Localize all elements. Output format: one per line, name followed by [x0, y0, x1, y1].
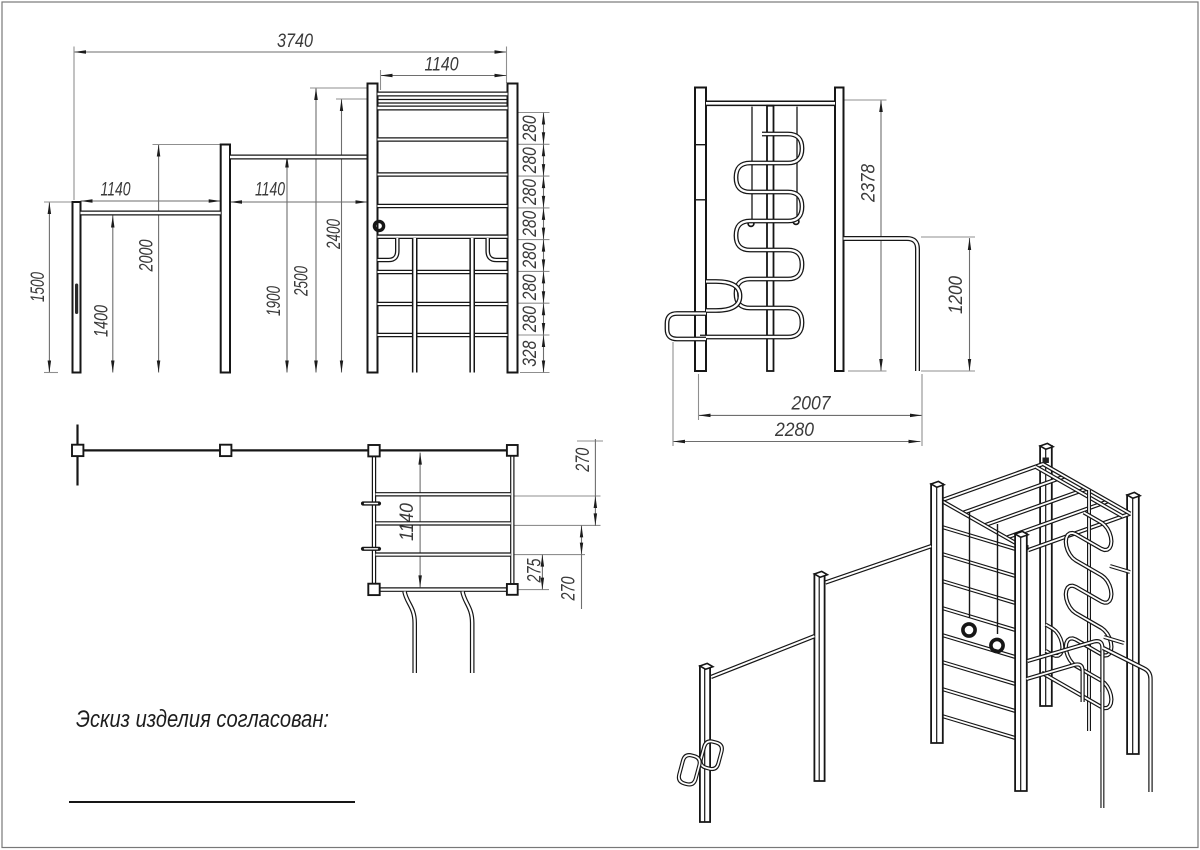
svg-text:280: 280 — [520, 306, 541, 333]
svg-text:1500: 1500 — [28, 272, 49, 302]
svg-text:1140: 1140 — [425, 55, 459, 76]
svg-text:1140: 1140 — [255, 180, 285, 201]
svg-text:3740: 3740 — [277, 31, 313, 52]
svg-text:280: 280 — [520, 242, 541, 269]
svg-text:1200: 1200 — [946, 276, 967, 314]
svg-text:2400: 2400 — [324, 219, 345, 250]
svg-text:328: 328 — [520, 340, 541, 366]
svg-text:2500: 2500 — [292, 266, 313, 297]
svg-text:280: 280 — [520, 274, 541, 301]
svg-text:280: 280 — [520, 115, 541, 142]
svg-text:275: 275 — [525, 558, 546, 583]
svg-text:280: 280 — [520, 210, 541, 237]
svg-text:280: 280 — [520, 147, 541, 174]
svg-text:270: 270 — [573, 447, 594, 472]
svg-text:270: 270 — [559, 576, 580, 601]
svg-text:1140: 1140 — [101, 180, 131, 201]
svg-text:2378: 2378 — [859, 164, 880, 203]
svg-text:2280: 2280 — [774, 420, 814, 441]
svg-text:Эскиз изделия согласован:: Эскиз изделия согласован: — [76, 706, 329, 733]
svg-text:280: 280 — [520, 179, 541, 206]
svg-text:2000: 2000 — [137, 239, 158, 272]
svg-text:2007: 2007 — [791, 394, 832, 415]
svg-text:1900: 1900 — [264, 286, 285, 316]
svg-text:1400: 1400 — [92, 305, 113, 337]
